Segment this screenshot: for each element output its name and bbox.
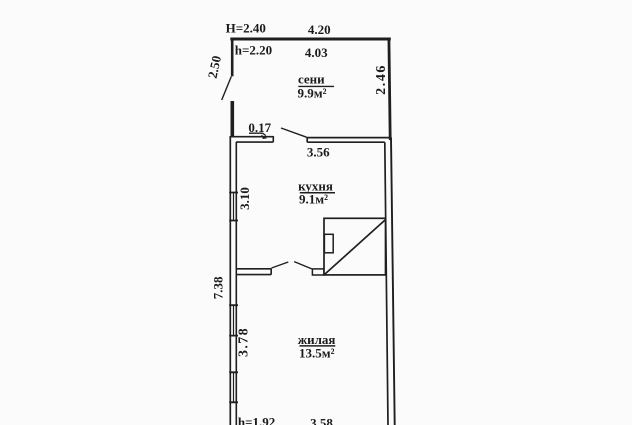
svg-text:4.03: 4.03 (305, 45, 328, 60)
svg-text:h=1.92: h=1.92 (238, 415, 275, 425)
svg-text:7.38: 7.38 (211, 276, 226, 299)
svg-text:3.58: 3.58 (310, 415, 333, 425)
svg-text:0.17: 0.17 (248, 120, 271, 135)
svg-text:4.20: 4.20 (308, 22, 331, 37)
svg-text:13.5м²: 13.5м² (299, 345, 335, 360)
svg-text:2.46: 2.46 (374, 64, 389, 95)
svg-text:h=2.20: h=2.20 (235, 42, 272, 57)
svg-text:3.56: 3.56 (307, 145, 330, 160)
svg-text:3.10: 3.10 (237, 187, 252, 210)
svg-text:9.1м²: 9.1м² (299, 192, 328, 207)
svg-text:H=2.40: H=2.40 (226, 21, 266, 36)
svg-text:3.78: 3.78 (237, 327, 252, 357)
svg-text:9.9м²: 9.9м² (297, 85, 326, 100)
